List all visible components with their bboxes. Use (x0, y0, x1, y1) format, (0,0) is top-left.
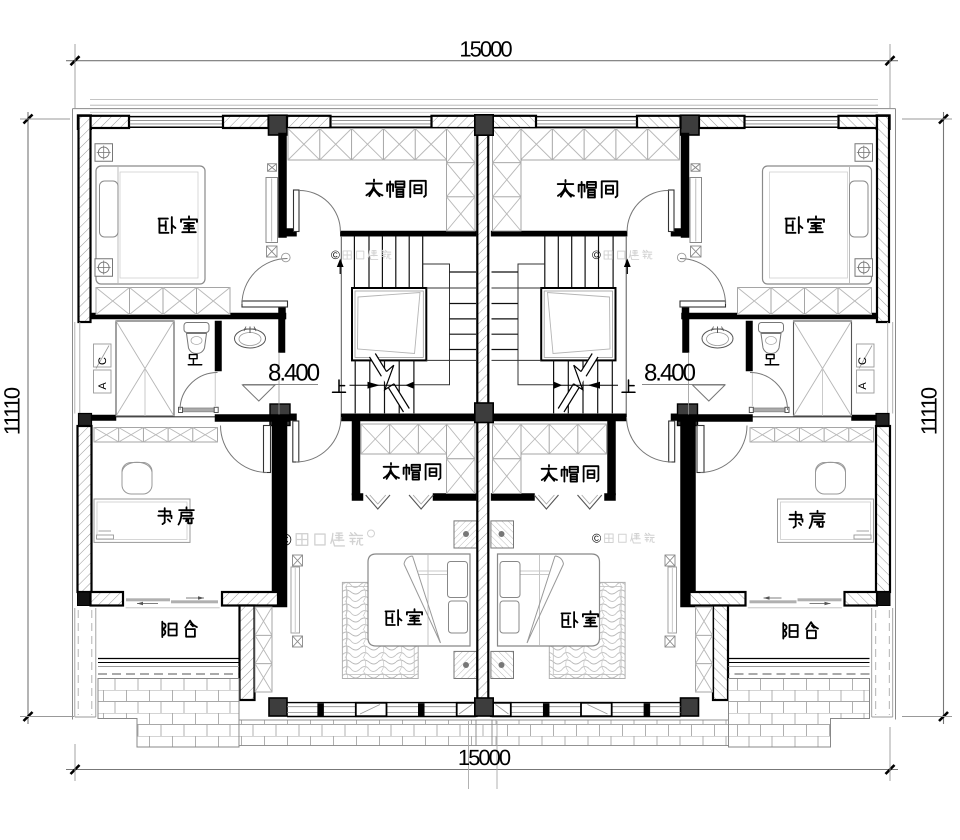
svg-text:11110: 11110 (0, 387, 25, 435)
svg-text:©: © (592, 532, 602, 546)
svg-text:©: © (592, 248, 601, 262)
svg-text:15000: 15000 (458, 745, 511, 770)
svg-text:11110: 11110 (917, 387, 942, 435)
svg-text:8.400: 8.400 (644, 360, 696, 387)
svg-text:©: © (331, 248, 340, 262)
svg-text:C: C (857, 357, 869, 365)
svg-text:©: © (279, 531, 292, 550)
svg-text:A: A (857, 382, 869, 390)
svg-text:C: C (97, 357, 109, 365)
svg-text:15000: 15000 (459, 37, 512, 62)
svg-text:A: A (97, 382, 109, 390)
svg-text:8.400: 8.400 (268, 360, 320, 387)
